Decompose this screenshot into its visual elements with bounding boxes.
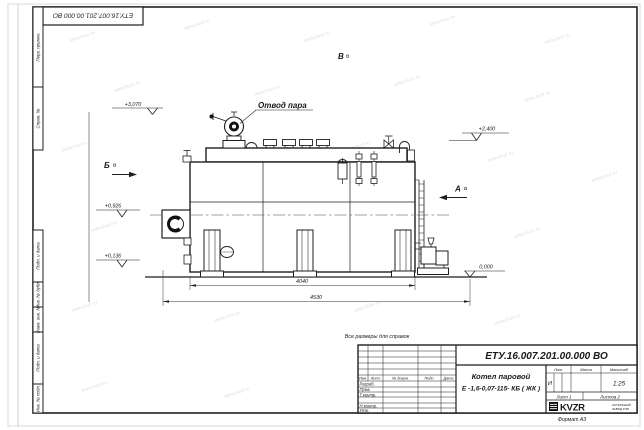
margin-col-label: Подп. и дата: [36, 242, 41, 270]
watermark-text: www.kvzr.ru: [71, 300, 99, 314]
watermark-text: www.kvzr.ru: [354, 300, 382, 314]
product-name-line1: Котел паровой: [472, 372, 531, 381]
dim-inner-value: 4040: [296, 279, 308, 285]
elevation-0136: +0,136: [96, 254, 140, 268]
col-izm: Изм.: [359, 376, 367, 380]
margin-col-label: Инв. № подл.: [36, 385, 41, 412]
drawing-sheet: www.kvzr.ru www.kvzr.ru www.kvzr.ru www.…: [0, 0, 644, 430]
watermark-text: www.kvzr.ru: [429, 14, 457, 28]
row-tkontr: Т.контр.: [360, 392, 377, 397]
watermark-text: www.kvzr.ru: [514, 226, 542, 240]
margin-col-label: Перв. примен.: [36, 32, 41, 61]
margin-columns: Перв. примен. Справ. № Подп. и дата Инв.…: [33, 7, 43, 413]
watermark-text: www.kvzr.ru: [114, 80, 142, 94]
row-razrab: Разраб.: [360, 382, 375, 387]
steam-outlet-valve: [210, 112, 258, 148]
scale-value: 1:25: [613, 381, 626, 388]
watermark-text: www.kvzr.ru: [61, 140, 89, 154]
watermark-text: www.kvzr.ru: [184, 18, 212, 32]
elevation-2400: +2,400: [449, 127, 509, 141]
watermark-text: www.kvzr.ru: [69, 30, 97, 44]
col-data: Дата: [442, 376, 453, 380]
col-doc: № докум.: [392, 376, 409, 380]
boiler-drawing: Отвод пара: [89, 52, 509, 306]
watermark-text: www.kvzr.ru: [487, 150, 515, 164]
row-prov: Пров.: [360, 387, 371, 392]
margin-col-label: Справ. №: [36, 108, 41, 128]
sheet-number: Лист 1: [556, 394, 573, 399]
watermark-text: www.kvzr.ru: [224, 386, 252, 400]
doc-number: ЕТУ.16.007.201.00.000 ВО: [485, 351, 608, 362]
scale-label: Масштаб: [610, 367, 629, 372]
col-podp: Подп.: [424, 376, 434, 380]
reference-note: Все размеры для справок: [345, 334, 410, 340]
elevation-3070: +3,070: [112, 102, 163, 115]
mass-label: Масса: [580, 367, 592, 372]
top-stamp: ЕТУ.16.007.201.00.000 ВО: [43, 7, 143, 25]
top-stamp-number: ЕТУ.16.007.201.00.000 ВО: [53, 12, 133, 19]
margin-col-label: Инв. № дубл.: [36, 281, 41, 308]
company-name-line2: ЗАВОД РЭП: [612, 407, 629, 411]
elevation-0926: +0,926: [96, 204, 140, 218]
watermark-text: www.kvzr.ru: [304, 30, 332, 44]
feed-pump: [415, 238, 449, 275]
format-note: Формат А3: [558, 417, 586, 423]
elev-value: +2,400: [479, 127, 496, 133]
elev-value: +0,136: [105, 254, 122, 260]
title-block: Изм. Лист № докум. Подп. Дата Разраб. Пр…: [358, 345, 637, 414]
watermark-text: www.kvzr.ru: [544, 32, 572, 46]
margin-col-label: Подп. и дата: [36, 344, 41, 372]
elev-value: +3,070: [125, 102, 142, 108]
furnace-door: [162, 210, 190, 238]
dim-outer-value: 4530: [310, 295, 322, 301]
watermark-text: www.kvzr.ru: [91, 220, 119, 234]
dimension-inner: 4040: [190, 276, 415, 290]
watermark-text: www.kvzr.ru: [524, 90, 552, 104]
elevation-zero: 0,000: [464, 264, 505, 277]
watermark-text: www.kvzr.ru: [394, 74, 422, 88]
watermark-text: www.kvzr.ru: [81, 380, 109, 394]
view-label-v: В: [338, 52, 344, 61]
product-name-line2: Е -1,6-0,07-115- КБ ( ЖК ): [462, 386, 540, 393]
steam-outlet-label: Отвод пара: [258, 101, 307, 110]
view-label-b: Б: [104, 161, 110, 170]
elev-value: +0,926: [105, 204, 122, 210]
col-list: Лист: [370, 376, 381, 380]
watermark-text: www.kvzr.ru: [494, 313, 522, 327]
elev-value: 0,000: [479, 264, 493, 270]
watermark-text: www.kvzr.ru: [591, 170, 619, 184]
row-utv: Утв.: [360, 408, 370, 413]
view-label-a: А: [454, 185, 461, 194]
logo-text: KVZR: [560, 403, 585, 414]
sheets-total: Листов 2: [599, 394, 620, 399]
top-hatches: [264, 140, 330, 149]
margin-col-label: Взам. инв. №: [36, 306, 41, 333]
lit-label: Лит.: [553, 367, 563, 372]
watermark-text: www.kvzr.ru: [254, 84, 282, 98]
steam-outlet-callout: Отвод пара: [240, 101, 313, 124]
watermark-text: www.kvzr.ru: [214, 310, 242, 324]
